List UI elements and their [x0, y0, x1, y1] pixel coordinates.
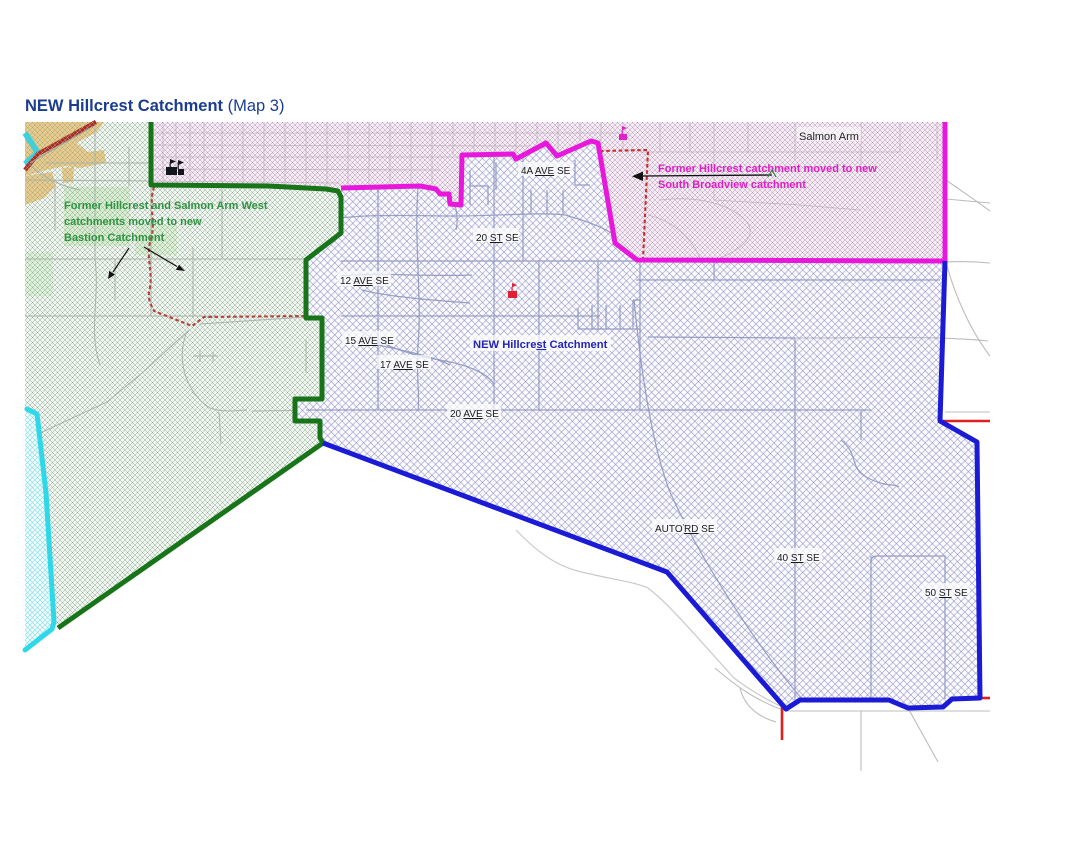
svg-text:Bastion Catchment: Bastion Catchment: [64, 232, 165, 244]
svg-text:17 AVE SE: 17 AVE SE: [380, 360, 429, 371]
svg-text:40 ST SE: 40 ST SE: [777, 553, 820, 564]
svg-text:20 AVE SE: 20 AVE SE: [450, 409, 499, 420]
svg-text:12 AVE SE: 12 AVE SE: [340, 276, 389, 287]
svg-text:South Broadview catchment: South Broadview catchment: [658, 179, 806, 191]
svg-text:Former Hillcrest catchment mov: Former Hillcrest catchment moved to new: [658, 163, 877, 175]
svg-text:Salmon Arm: Salmon Arm: [799, 131, 859, 143]
svg-text:Former Hillcrest and Salmon Ar: Former Hillcrest and Salmon Arm West: [64, 200, 268, 212]
svg-text:catchments moved to new: catchments moved to new: [64, 216, 202, 228]
svg-text:NEW Hillcrest Catchment: NEW Hillcrest Catchment: [473, 339, 608, 351]
svg-text:20 ST SE: 20 ST SE: [476, 233, 519, 244]
svg-text:50 ST SE: 50 ST SE: [925, 588, 968, 599]
svg-text:NEW Hillcrest Catchment (Map 3: NEW Hillcrest Catchment (Map 3): [25, 97, 284, 115]
svg-text:4A AVE SE: 4A AVE SE: [521, 166, 571, 177]
svg-text:15 AVE SE: 15 AVE SE: [345, 336, 394, 347]
svg-text:AUTO'RD SE: AUTO'RD SE: [655, 524, 715, 535]
